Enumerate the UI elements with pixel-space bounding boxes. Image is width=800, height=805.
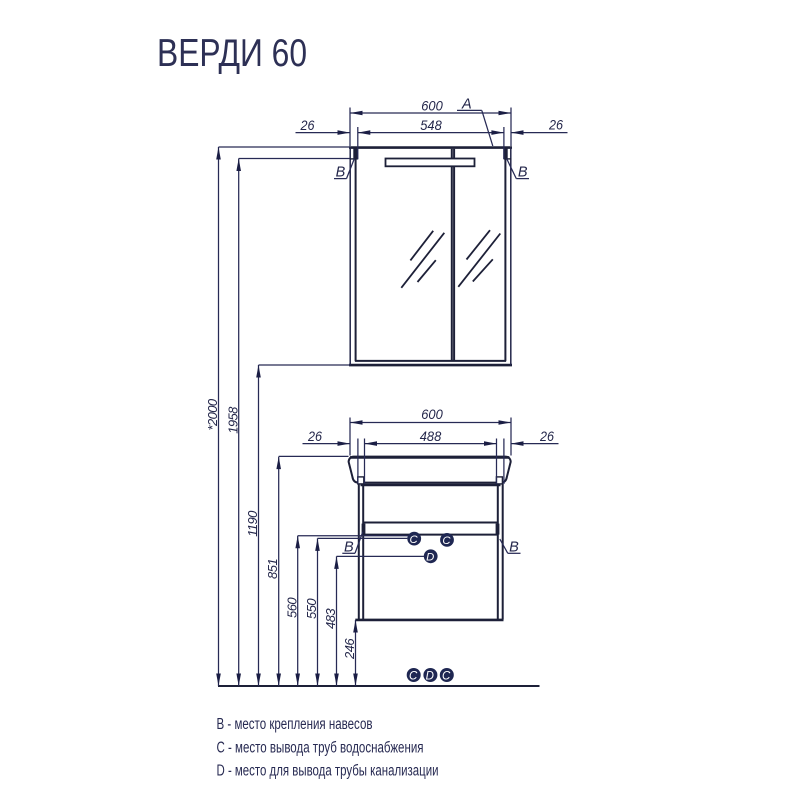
svg-text:C: C <box>442 535 451 547</box>
svg-text:560: 560 <box>284 597 299 618</box>
svg-text:550: 550 <box>304 598 319 619</box>
svg-text:ВЕРДИ 60: ВЕРДИ 60 <box>157 32 307 75</box>
svg-text:26: 26 <box>307 428 322 444</box>
svg-text:C: C <box>410 534 419 546</box>
svg-text:B - место крепления навесов: B - место крепления навесов <box>217 716 373 733</box>
svg-text:D - место для вывода трубы кан: D - место для вывода трубы канализации <box>217 763 439 780</box>
svg-text:C - место вывода труб водоснаб: C - место вывода труб водоснабжения <box>217 740 424 757</box>
svg-text:246: 246 <box>342 638 357 660</box>
svg-text:*2000: *2000 <box>205 398 220 430</box>
svg-text:C: C <box>442 670 451 682</box>
svg-text:26: 26 <box>548 117 563 133</box>
svg-text:1958: 1958 <box>225 406 240 434</box>
svg-text:26: 26 <box>539 428 554 444</box>
svg-text:851: 851 <box>265 559 280 579</box>
svg-text:C: C <box>409 670 418 682</box>
svg-text:600: 600 <box>421 406 443 422</box>
svg-text:D: D <box>426 551 434 563</box>
svg-text:26: 26 <box>300 117 315 133</box>
svg-text:483: 483 <box>323 608 338 629</box>
svg-text:600: 600 <box>421 98 443 114</box>
svg-text:D: D <box>426 670 434 682</box>
svg-text:1190: 1190 <box>245 510 260 537</box>
svg-text:488: 488 <box>420 428 442 444</box>
svg-text:548: 548 <box>420 117 442 133</box>
